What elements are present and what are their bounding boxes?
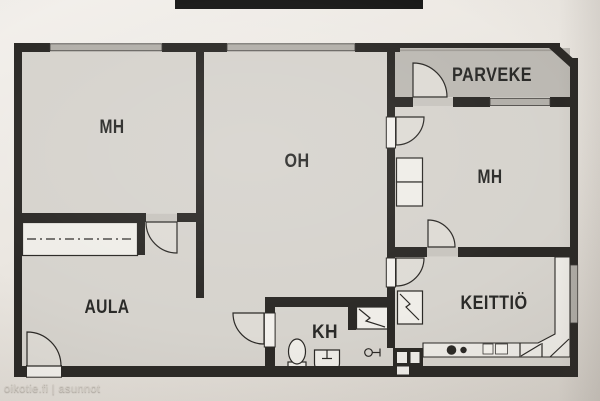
stove-burner-icon (460, 347, 466, 353)
duct-shaft-cell (397, 352, 407, 363)
door-leaf (386, 258, 395, 287)
wall-segment (265, 307, 275, 313)
wall-segment (395, 247, 427, 257)
toilet-icon (288, 339, 306, 369)
room-label-hall: AULA (85, 297, 130, 318)
bedroom-left-threshold (146, 214, 177, 222)
sink-unit-icon (483, 344, 493, 354)
floor-plan-drawing: MH OH PARVEKE MH AULA KH KEITTIÖ (0, 0, 600, 401)
sink-unit-icon (496, 344, 508, 354)
wall-segment (265, 297, 395, 307)
door-leaf (386, 117, 395, 148)
window (227, 44, 355, 51)
window (570, 265, 577, 323)
door-leaf (264, 313, 275, 347)
wall-segment (387, 148, 395, 258)
wardrobe (397, 182, 423, 206)
room-label-bedroom-left: MH (100, 117, 125, 138)
floor-plan-photo: MH OH PARVEKE MH AULA KH KEITTIÖ oikotie… (0, 0, 600, 401)
balcony-threshold (413, 98, 453, 106)
wall-segment (458, 247, 578, 257)
bottom-outer-wall (61, 366, 578, 377)
wall-segment (22, 213, 146, 222)
duct-shaft-cell (411, 352, 420, 363)
bedroom-right-threshold (427, 248, 458, 257)
wall-segment (265, 347, 275, 366)
wall-segment (453, 97, 490, 107)
duct-shaft-cell (397, 367, 409, 375)
wall-segment (550, 97, 578, 107)
bottom-outer-wall (14, 366, 27, 377)
room-label-bathroom: KH (312, 322, 338, 343)
room-label-living-room: OH (285, 151, 310, 172)
wardrobe (397, 158, 423, 182)
wall-segment (387, 287, 395, 348)
wall-segment (348, 307, 356, 330)
balcony-sill-line (400, 50, 558, 52)
wall-segment (355, 43, 400, 52)
window (490, 98, 550, 105)
room-label-kitchen: KEITTIÖ (461, 293, 528, 314)
wall-segment (137, 222, 145, 255)
room-label-balcony: PARVEKE (452, 65, 532, 86)
window (50, 44, 162, 51)
wall-segment (162, 43, 227, 52)
stove-icon (447, 345, 457, 355)
watermark: oikotie.fi | asunnot (4, 383, 100, 395)
entrance-door-leaf (27, 366, 62, 378)
wall-segment (177, 213, 204, 222)
wall-segment (196, 52, 204, 298)
balcony-outer-wall (400, 43, 560, 48)
wall-segment (387, 52, 395, 117)
room-label-bedroom-right: MH (478, 167, 503, 188)
left-outer-wall (14, 43, 22, 377)
